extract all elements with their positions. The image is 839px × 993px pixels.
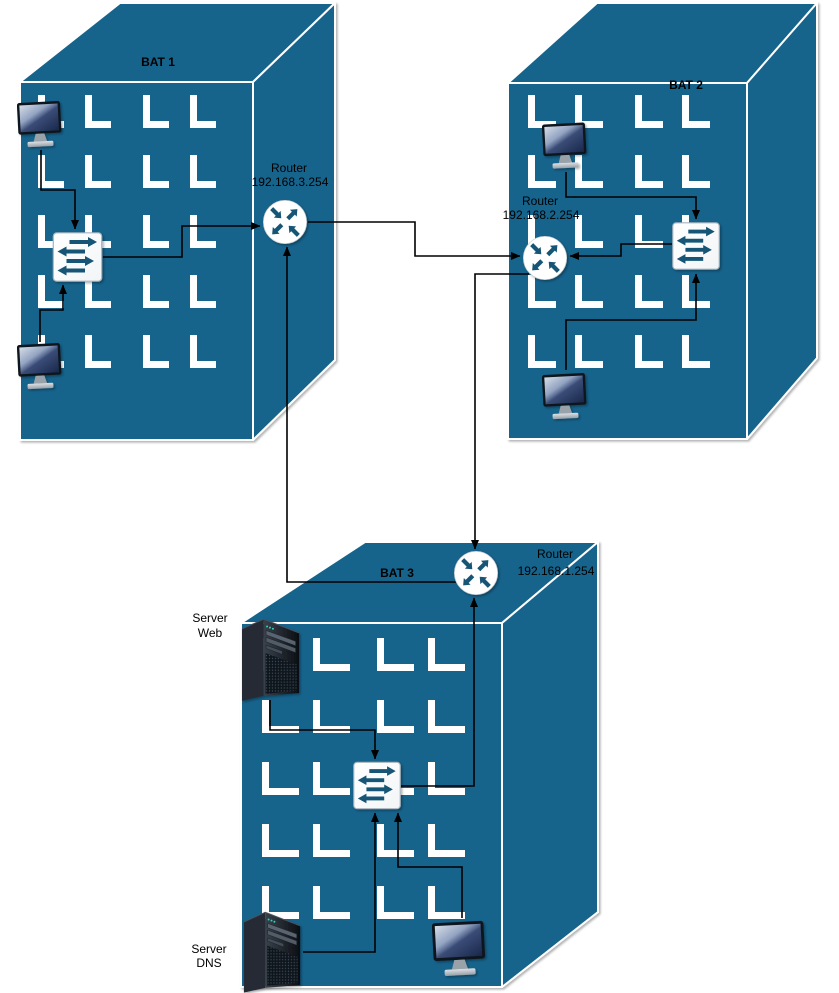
server-web[interactable]	[242, 619, 299, 701]
building-bat3[interactable]: BAT 3	[241, 542, 598, 987]
link-router1-router2[interactable]	[308, 222, 520, 256]
server-dns-label: Server DNS	[191, 942, 226, 970]
router-ip: 192.168.2.254	[503, 208, 580, 222]
switch-icon	[673, 223, 719, 269]
diagram-canvas: BAT 1 BAT 2 BAT 3	[0, 0, 839, 993]
server-icon	[242, 619, 299, 701]
router-bat1[interactable]	[263, 200, 306, 243]
switch-bat1[interactable]	[53, 233, 101, 281]
server-label-line2: Web	[198, 626, 223, 640]
server-label-line1: Server	[192, 611, 227, 625]
router-name: Router	[537, 547, 573, 561]
router-icon	[263, 200, 306, 243]
router-ip: 192.168.3.254	[252, 175, 329, 189]
server-dns[interactable]	[244, 912, 300, 992]
router-icon	[454, 551, 497, 594]
router-bat3[interactable]	[454, 551, 497, 594]
server-icon	[244, 912, 300, 992]
router-name: Router	[271, 161, 307, 175]
router-bat2[interactable]	[523, 236, 566, 279]
router-name: Router	[522, 194, 558, 208]
server-web-label: Server Web	[192, 611, 227, 640]
building-bat3-label: BAT 3	[380, 566, 414, 580]
router-icon	[523, 236, 566, 279]
bat1-windows	[38, 95, 218, 368]
server-label-line2: DNS	[196, 956, 221, 970]
switch-bat2[interactable]	[673, 223, 719, 269]
building-bat1-label: BAT 1	[141, 55, 175, 69]
switch-icon	[53, 233, 101, 281]
server-label-line1: Server	[191, 942, 226, 956]
router-ip: 192.168.1.254	[518, 564, 595, 578]
switch-bat3[interactable]	[354, 762, 400, 808]
switch-icon	[354, 762, 400, 808]
building-bat2-label: BAT 2	[669, 78, 703, 92]
